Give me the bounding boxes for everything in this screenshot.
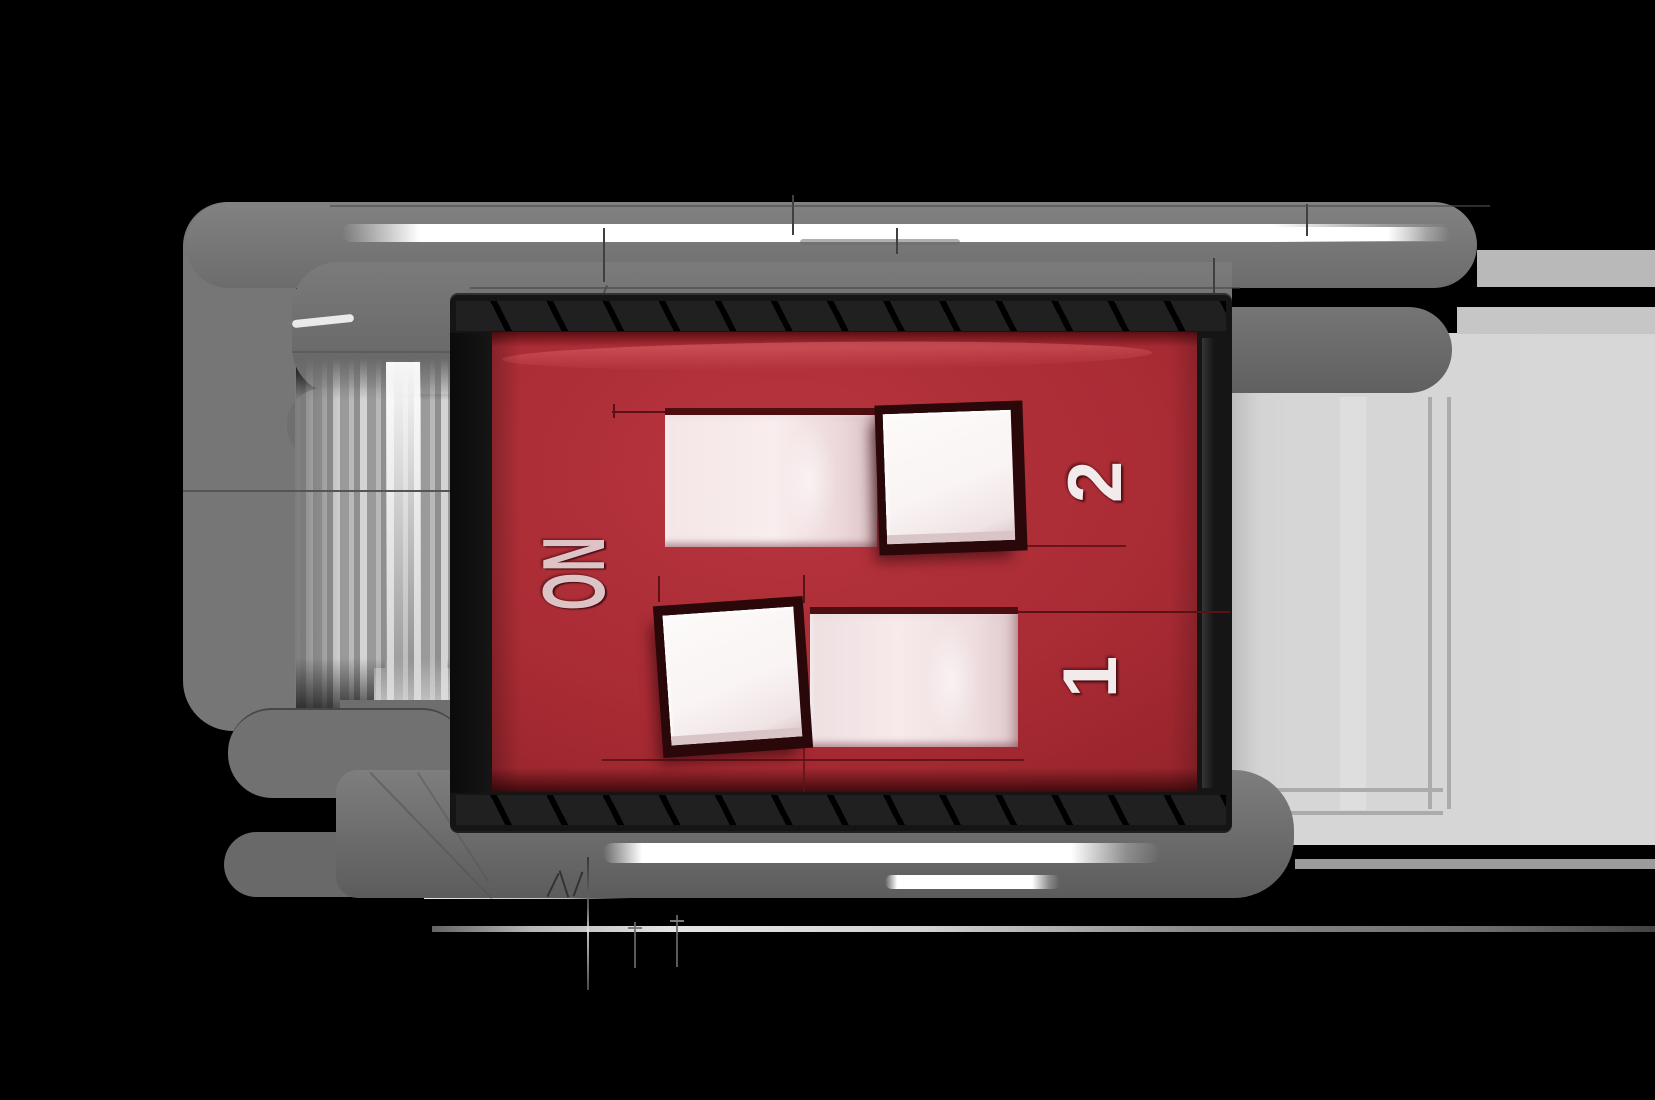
frame-right-gloss bbox=[1202, 338, 1214, 788]
red-sketch-line-1 bbox=[612, 411, 668, 413]
pin-bar-top-under-right bbox=[1232, 307, 1452, 393]
switch-1-knob-face bbox=[663, 607, 803, 746]
frame-hatch-top bbox=[456, 301, 1226, 331]
pin-brushed-metal-column bbox=[295, 358, 455, 740]
switch-1-slot bbox=[810, 607, 1018, 747]
red-bottom-shade bbox=[492, 768, 1197, 792]
sketch-tick-1 bbox=[603, 228, 605, 282]
red-left-shade bbox=[492, 332, 520, 792]
switch-red-face: ON 2 1 bbox=[492, 332, 1197, 792]
shadow-top-strip bbox=[1477, 250, 1655, 287]
on-label: ON bbox=[539, 535, 609, 612]
red-sketch-tick-3 bbox=[803, 744, 805, 792]
sketch-line-upper bbox=[470, 287, 1240, 289]
red-sketch-line-4 bbox=[602, 759, 1024, 761]
dip-switch-scene: ON 2 1 bbox=[0, 0, 1655, 1100]
shadow-ghost-vertical-lines bbox=[1428, 397, 1451, 809]
shadow-under-stripe bbox=[1295, 859, 1655, 869]
bottom-sketch-tick-3 bbox=[670, 920, 684, 922]
bottom-sketch-vertical-1 bbox=[587, 857, 589, 990]
switch-2-label: 2 bbox=[1055, 442, 1135, 522]
pin-bright-streak bbox=[386, 362, 420, 732]
sketch-tick-2 bbox=[792, 195, 794, 235]
sketch-line-left bbox=[183, 490, 455, 492]
red-sketch-tick-2 bbox=[803, 575, 805, 603]
shadow-baseline-stripe bbox=[432, 926, 1655, 932]
bottom-sketch-vertical-3 bbox=[676, 915, 678, 967]
highlight-bottom-bar-2 bbox=[885, 875, 1060, 889]
frame-hatch-bottom bbox=[456, 795, 1226, 825]
switch-2-slot-shine bbox=[782, 423, 837, 539]
switch-1-knob[interactable] bbox=[653, 596, 813, 758]
bottom-sketch-tick-2 bbox=[628, 927, 642, 929]
red-sketch-tick-4 bbox=[613, 404, 615, 418]
sketch-tick-4 bbox=[896, 228, 898, 254]
red-sketch-line-2 bbox=[1022, 545, 1126, 547]
red-sketch-tick-1 bbox=[658, 576, 660, 602]
shadow-light-column bbox=[1340, 397, 1366, 810]
sketch-tick-3 bbox=[1306, 204, 1308, 236]
highlight-top-bar-right bbox=[1060, 227, 1450, 241]
highlight-top-break bbox=[800, 239, 960, 245]
red-right-shade bbox=[1170, 332, 1197, 792]
switch-2-knob[interactable] bbox=[874, 400, 1027, 555]
sketch-line-top bbox=[330, 205, 1490, 207]
switch-1-slot-shine bbox=[924, 622, 978, 739]
frame-left-shade bbox=[450, 333, 490, 793]
highlight-bottom-bar bbox=[603, 843, 1160, 863]
switch-1-label: 1 bbox=[1050, 637, 1130, 717]
shadow-mid-strip bbox=[1457, 307, 1655, 334]
switch-2-slot bbox=[665, 408, 877, 547]
switch-2-knob-face bbox=[883, 410, 1015, 544]
